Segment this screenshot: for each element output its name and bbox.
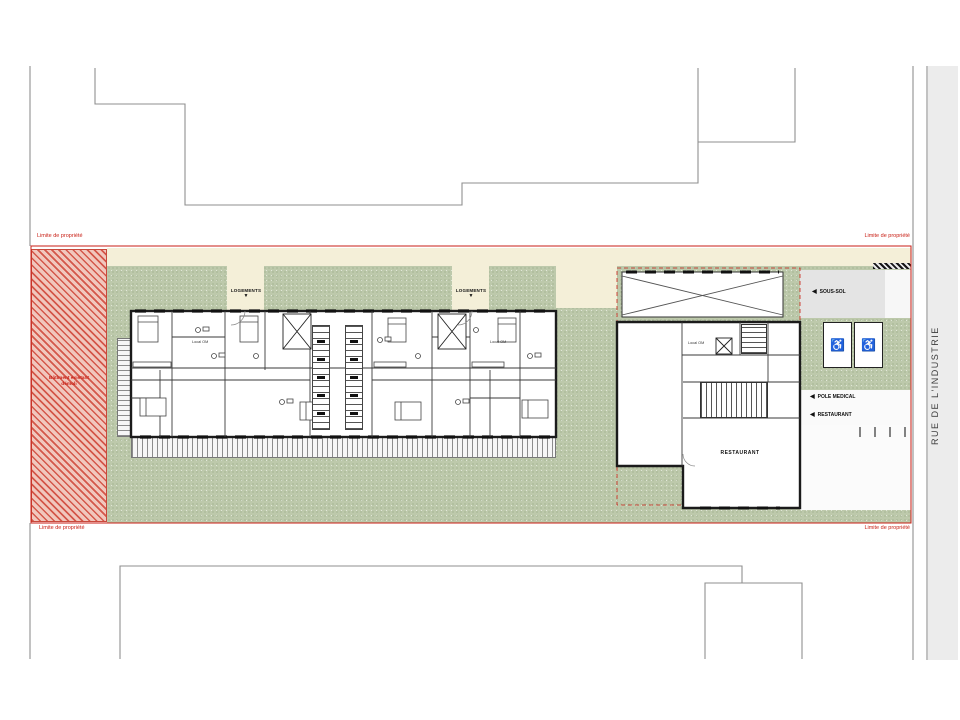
down-arrow-icon: ▼ bbox=[449, 294, 493, 299]
site-plan-canvas: ♿ ♿ Limite de propriété Limite de propri… bbox=[0, 0, 960, 720]
left-arrow-icon: ◀ bbox=[810, 394, 815, 400]
main-stair-hatch bbox=[700, 382, 768, 418]
local-om-label-1: Local OM bbox=[192, 340, 208, 344]
bike-rack-marks-1 bbox=[317, 325, 325, 430]
pole-medical-access-label: ◀ POLE MEDICAL bbox=[810, 394, 855, 400]
sous-sol-side-area bbox=[885, 270, 911, 318]
main-building-footprint bbox=[131, 311, 556, 437]
boundary-label-top-left: Limite de propriété bbox=[37, 233, 107, 239]
local-om-label-3: Local OM bbox=[688, 341, 704, 345]
terrace-deck-left bbox=[117, 338, 131, 437]
retaining-wall-bar bbox=[873, 263, 911, 269]
sous-sol-text: SOUS-SOL bbox=[820, 289, 846, 295]
left-arrow-icon: ◀ bbox=[810, 412, 815, 418]
terrace-deck-bottom bbox=[131, 437, 556, 458]
restaurant-access-label: ◀ RESTAURANT bbox=[810, 412, 852, 418]
pole-medical-text: POLE MEDICAL bbox=[818, 394, 856, 400]
down-arrow-icon: ▼ bbox=[224, 294, 268, 299]
local-om-label-2: Local OM bbox=[490, 340, 506, 344]
wheelchair-icon: ♿ bbox=[830, 338, 845, 352]
sous-sol-access-label: ◀ SOUS-SOL bbox=[812, 289, 846, 295]
boundary-label-bottom-left: Limite de propriété bbox=[39, 525, 109, 531]
restaurant-room-label: RESTAURANT bbox=[703, 450, 777, 456]
boundary-label-top-right: Limite de propriété bbox=[840, 233, 910, 239]
upper-stair-hatch bbox=[741, 324, 767, 354]
entrance-path-3 bbox=[556, 266, 617, 308]
street-name-label: RUE DE L'INDUSTRIE bbox=[930, 295, 940, 445]
accessible-parking-stall-2: ♿ bbox=[854, 322, 883, 368]
sidewalk-strip bbox=[107, 248, 911, 268]
parking-area bbox=[800, 425, 911, 510]
demolition-zone-label: Bâtiment existant démoli bbox=[36, 376, 102, 389]
accessible-parking-stall-1: ♿ bbox=[823, 322, 852, 368]
restaurant-access-text: RESTAURANT bbox=[818, 412, 852, 418]
boundary-label-bottom-right: Limite de propriété bbox=[840, 525, 910, 531]
left-arrow-icon: ◀ bbox=[812, 289, 817, 295]
wheelchair-icon: ♿ bbox=[861, 338, 876, 352]
bike-rack-marks-2 bbox=[350, 325, 358, 430]
demolition-line-2: démoli bbox=[36, 382, 102, 388]
